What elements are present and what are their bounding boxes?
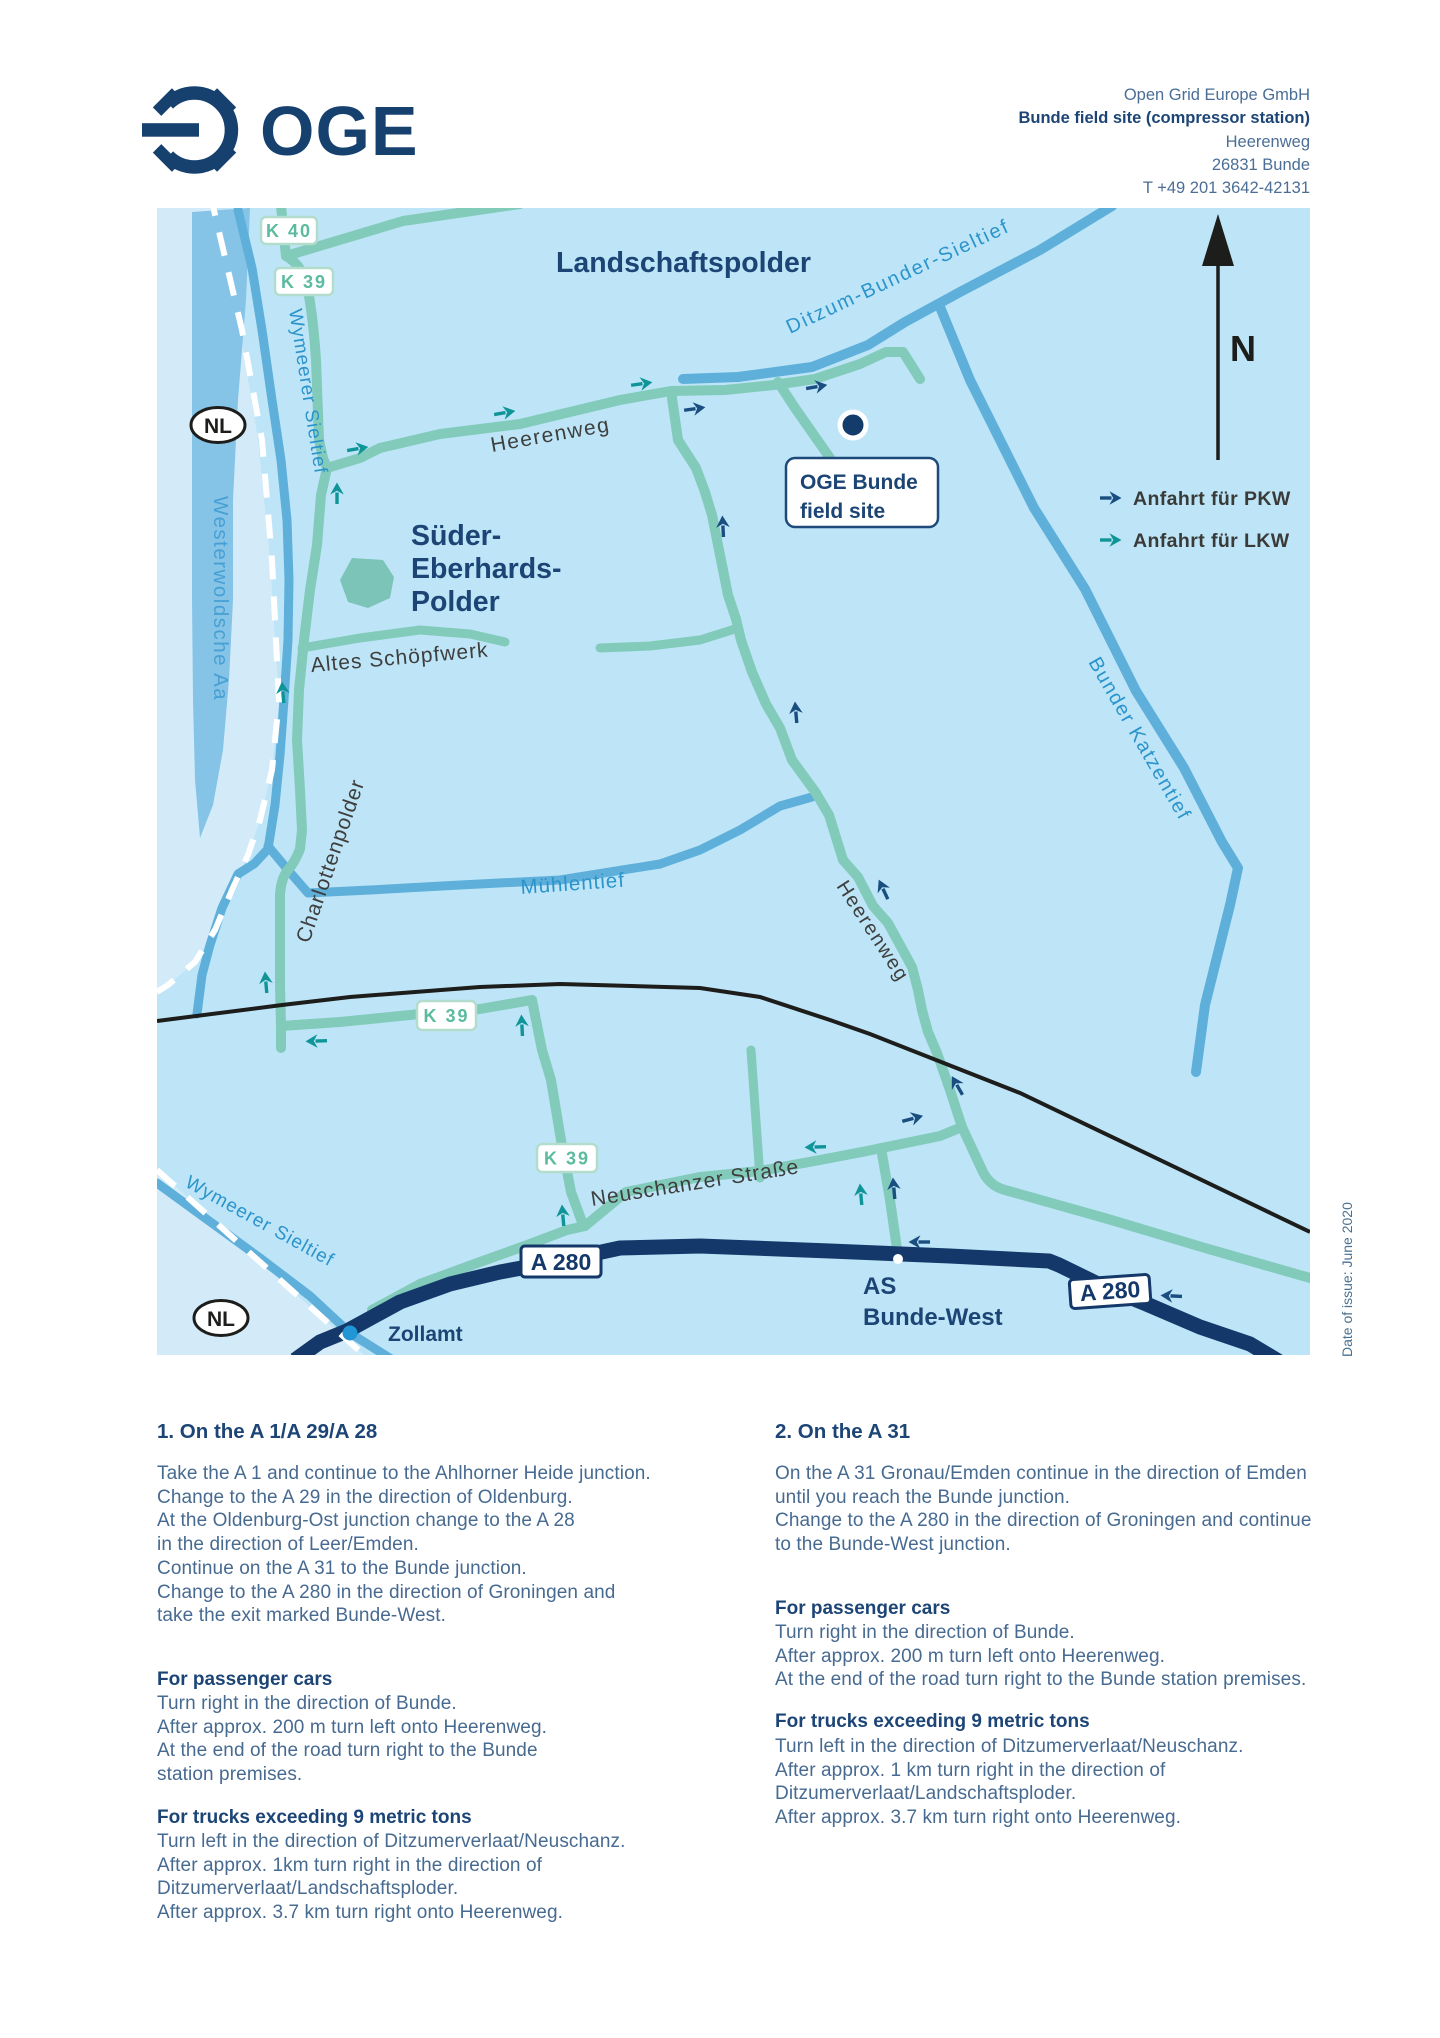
svg-text:NL: NL bbox=[204, 415, 232, 438]
svg-text:K 39: K 39 bbox=[423, 1006, 469, 1026]
svg-text:Süder-: Süder- bbox=[411, 520, 501, 552]
svg-text:Anfahrt für PKW: Anfahrt für PKW bbox=[1133, 488, 1291, 510]
svg-text:K 39: K 39 bbox=[281, 272, 327, 292]
svg-text:AS: AS bbox=[863, 1273, 896, 1300]
svg-text:field site: field site bbox=[800, 500, 885, 523]
svg-text:A 280: A 280 bbox=[1079, 1276, 1141, 1306]
svg-text:NL: NL bbox=[207, 1308, 235, 1331]
svg-text:Polder: Polder bbox=[411, 586, 500, 618]
svg-text:A 280: A 280 bbox=[531, 1249, 592, 1275]
svg-text:Westerwoldsche Aa: Westerwoldsche Aa bbox=[209, 496, 232, 701]
svg-text:Anfahrt für LKW: Anfahrt für LKW bbox=[1133, 530, 1290, 552]
svg-text:N: N bbox=[1230, 328, 1256, 369]
svg-text:Bunde-West: Bunde-West bbox=[863, 1304, 1003, 1331]
svg-text:OGE: OGE bbox=[260, 92, 419, 170]
svg-text:OGE Bunde: OGE Bunde bbox=[800, 471, 918, 494]
svg-text:Zollamt: Zollamt bbox=[388, 1323, 463, 1346]
svg-text:K 39: K 39 bbox=[544, 1149, 590, 1169]
svg-text:K 40: K 40 bbox=[266, 221, 312, 241]
svg-text:Landschaftspolder: Landschaftspolder bbox=[556, 247, 811, 279]
svg-text:Eberhards-: Eberhards- bbox=[411, 553, 561, 585]
